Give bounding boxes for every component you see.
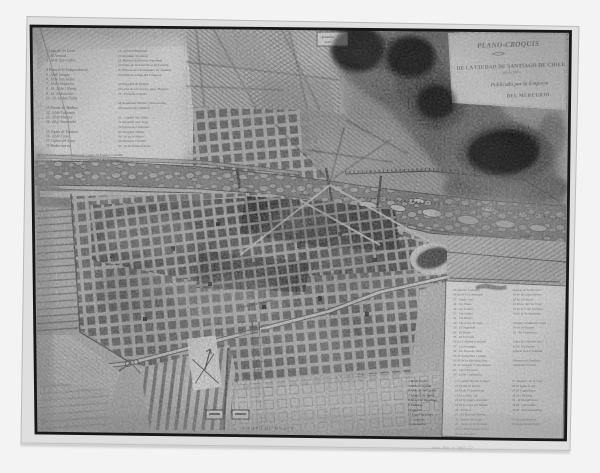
svg-text:mus. hist. n 1883-12: mus. hist. n 1883-12 [432,446,473,452]
